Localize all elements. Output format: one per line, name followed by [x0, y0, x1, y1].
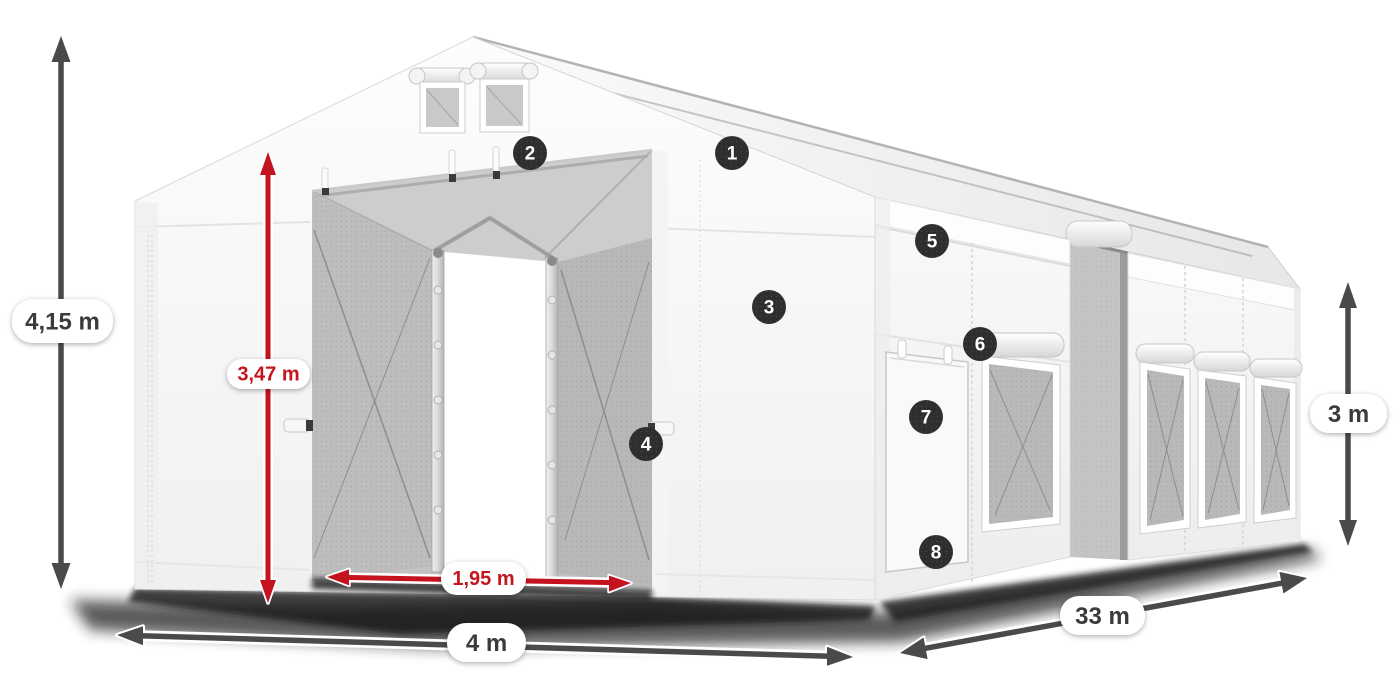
svg-text:4: 4	[641, 435, 652, 456]
gable-window-right	[470, 63, 538, 132]
inner-height-value: 3,47 m	[237, 364, 299, 386]
rear-window-1	[1136, 344, 1194, 534]
rear-window-3	[1250, 359, 1302, 523]
front-left-corner-column	[135, 201, 158, 589]
dimension-label-front-width: 4 m	[447, 623, 526, 662]
svg-text:1: 1	[727, 144, 738, 165]
dimension-label-inner-height: 3,47 m	[227, 359, 310, 389]
front-section-side-wall	[875, 197, 1070, 600]
tent-illustration: 4,15 m 3,47 m 1,95 m 4 m	[0, 0, 1400, 700]
dimension-label-door-width: 1,95 m	[441, 562, 526, 595]
feature-marker-4: 4	[629, 427, 663, 461]
feature-marker-6: 6	[963, 327, 997, 361]
door-width-value: 1,95 m	[452, 568, 514, 590]
svg-text:3: 3	[764, 298, 775, 319]
feature-marker-5: 5	[915, 224, 949, 258]
tent-dimension-diagram: 4,15 m 3,47 m 1,95 m 4 m	[0, 0, 1400, 700]
total-height-value: 4,15 m	[25, 309, 100, 336]
dimension-label-total-height: 4,15 m	[12, 299, 113, 343]
feature-marker-3: 3	[752, 290, 786, 324]
front-right-door-column	[652, 150, 668, 592]
front-width-value: 4 m	[466, 630, 507, 657]
svg-text:6: 6	[975, 335, 986, 356]
middle-door-post-right	[546, 256, 558, 578]
side-door-flap	[886, 340, 968, 572]
middle-door-post-left	[432, 248, 444, 572]
svg-text:8: 8	[931, 543, 942, 564]
svg-text:2: 2	[525, 144, 536, 165]
rear-window-2	[1194, 352, 1250, 528]
rolled-curtain	[1066, 221, 1132, 247]
feature-marker-2: 2	[513, 136, 547, 170]
feature-marker-8: 8	[919, 535, 953, 569]
length-value: 33 m	[1075, 603, 1130, 630]
open-passage	[444, 252, 556, 578]
dimension-label-length: 33 m	[1060, 596, 1145, 635]
dimension-label-side-height: 3 m	[1310, 394, 1387, 433]
feature-marker-1: 1	[715, 136, 749, 170]
svg-text:5: 5	[927, 232, 938, 253]
front-opening-interior	[312, 147, 652, 601]
middle-passage-opening	[1066, 221, 1132, 560]
rear-section-side-wall	[1128, 253, 1302, 560]
feature-marker-7: 7	[909, 400, 943, 434]
door-handle-left	[284, 419, 313, 432]
svg-text:7: 7	[921, 408, 932, 429]
side-height-value: 3 m	[1328, 401, 1369, 428]
